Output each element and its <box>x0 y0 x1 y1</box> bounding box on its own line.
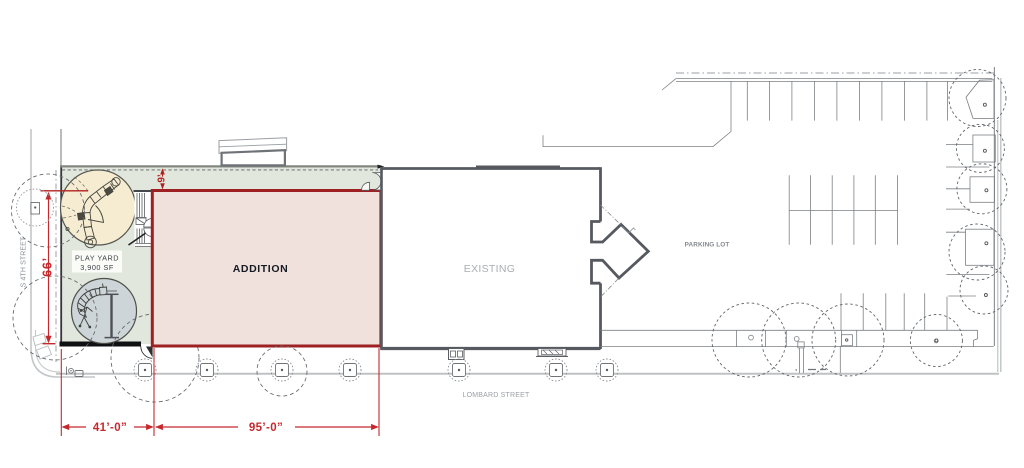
svg-text:EXISTING: EXISTING <box>464 263 515 275</box>
svg-text:41’-0”: 41’-0” <box>93 422 127 434</box>
svg-text:PARKING LOT: PARKING LOT <box>685 242 730 249</box>
svg-text:ADDITION: ADDITION <box>233 263 289 275</box>
svg-text:9’: 9’ <box>157 174 168 183</box>
svg-text:PLAY YARD: PLAY YARD <box>75 254 119 263</box>
svg-text:3,900 SF: 3,900 SF <box>80 263 114 272</box>
svg-text:95’-0”: 95’-0” <box>249 422 283 434</box>
svg-text:LOMBARD STREET: LOMBARD STREET <box>463 392 530 399</box>
svg-text:66’: 66’ <box>41 257 55 277</box>
svg-text:S 4TH STREET: S 4TH STREET <box>21 236 28 287</box>
